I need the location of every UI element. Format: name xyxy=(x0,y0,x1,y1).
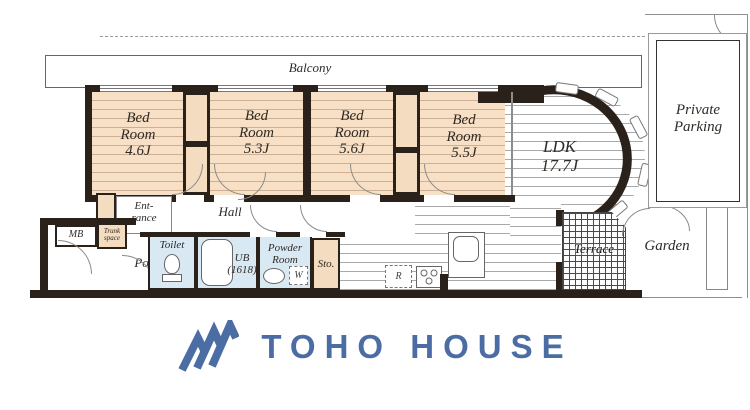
window-bedroom-4 xyxy=(428,85,498,92)
logo-text: TOHO HOUSE xyxy=(261,328,572,366)
ub-label: UB(1618) xyxy=(224,252,260,276)
garden-bottom-line xyxy=(640,297,742,298)
terrace-label: Terrace xyxy=(562,242,626,256)
bedroom-3-label: BedRoom5.6J xyxy=(313,108,391,158)
door-arc-toilet xyxy=(250,205,277,232)
wall-left xyxy=(85,85,92,197)
powder-sink-icon xyxy=(263,268,285,284)
bedroom-2-label: BedRoom5.3J xyxy=(214,108,299,158)
bedroom-1-label: BedRoom4.6J xyxy=(97,110,179,160)
wall-bedroom-divider xyxy=(303,85,311,202)
garden-fence xyxy=(706,202,728,290)
stove-icon xyxy=(416,266,442,288)
door-gap-3 xyxy=(350,195,380,202)
logo-mark-icon xyxy=(177,320,239,374)
door-arc-powder xyxy=(300,205,327,232)
mb-label: MB xyxy=(55,229,97,240)
door-gap-powder xyxy=(300,232,326,237)
fridge-label: R xyxy=(395,271,401,282)
toilet-label: Toilet xyxy=(150,239,194,251)
bedroom-4-label: BedRoom5.5J xyxy=(422,112,506,162)
garden-label: Garden xyxy=(630,238,704,255)
washer-label: W xyxy=(294,270,302,281)
fridge-space: R xyxy=(385,265,412,288)
balcony-label: Balcony xyxy=(255,61,365,75)
boundary-line-top xyxy=(100,36,645,37)
kitchen-sink-icon xyxy=(453,236,479,262)
ldk-label: LDK17.7J xyxy=(512,138,607,175)
logo: TOHO HOUSE xyxy=(0,312,750,382)
door-gap-1 xyxy=(176,195,204,202)
window-bedroom-1 xyxy=(100,85,172,92)
toilet-tank-icon xyxy=(162,274,182,282)
parking-label: PrivateParking xyxy=(656,102,740,135)
powder-label: PowderRoom xyxy=(260,242,310,266)
door-gap-4 xyxy=(424,195,454,202)
wall-bottom-bar xyxy=(30,290,642,298)
window-bedroom-3 xyxy=(318,85,386,92)
door-gap-toilet xyxy=(250,232,276,237)
wall-porch-left xyxy=(40,218,48,292)
washer-space: W xyxy=(289,266,308,285)
window-bedroom-2 xyxy=(218,85,293,92)
wall-kitchen-stub xyxy=(440,274,448,290)
trunk-label: Trunkspace xyxy=(97,228,127,242)
boundary-line-right xyxy=(747,14,748,298)
toilet-icon xyxy=(164,254,180,274)
closet-2 xyxy=(393,92,420,195)
sto-label: Sto. xyxy=(310,258,342,270)
floor-plan: Balcony xyxy=(0,0,750,410)
door-arc-garden xyxy=(660,205,690,231)
